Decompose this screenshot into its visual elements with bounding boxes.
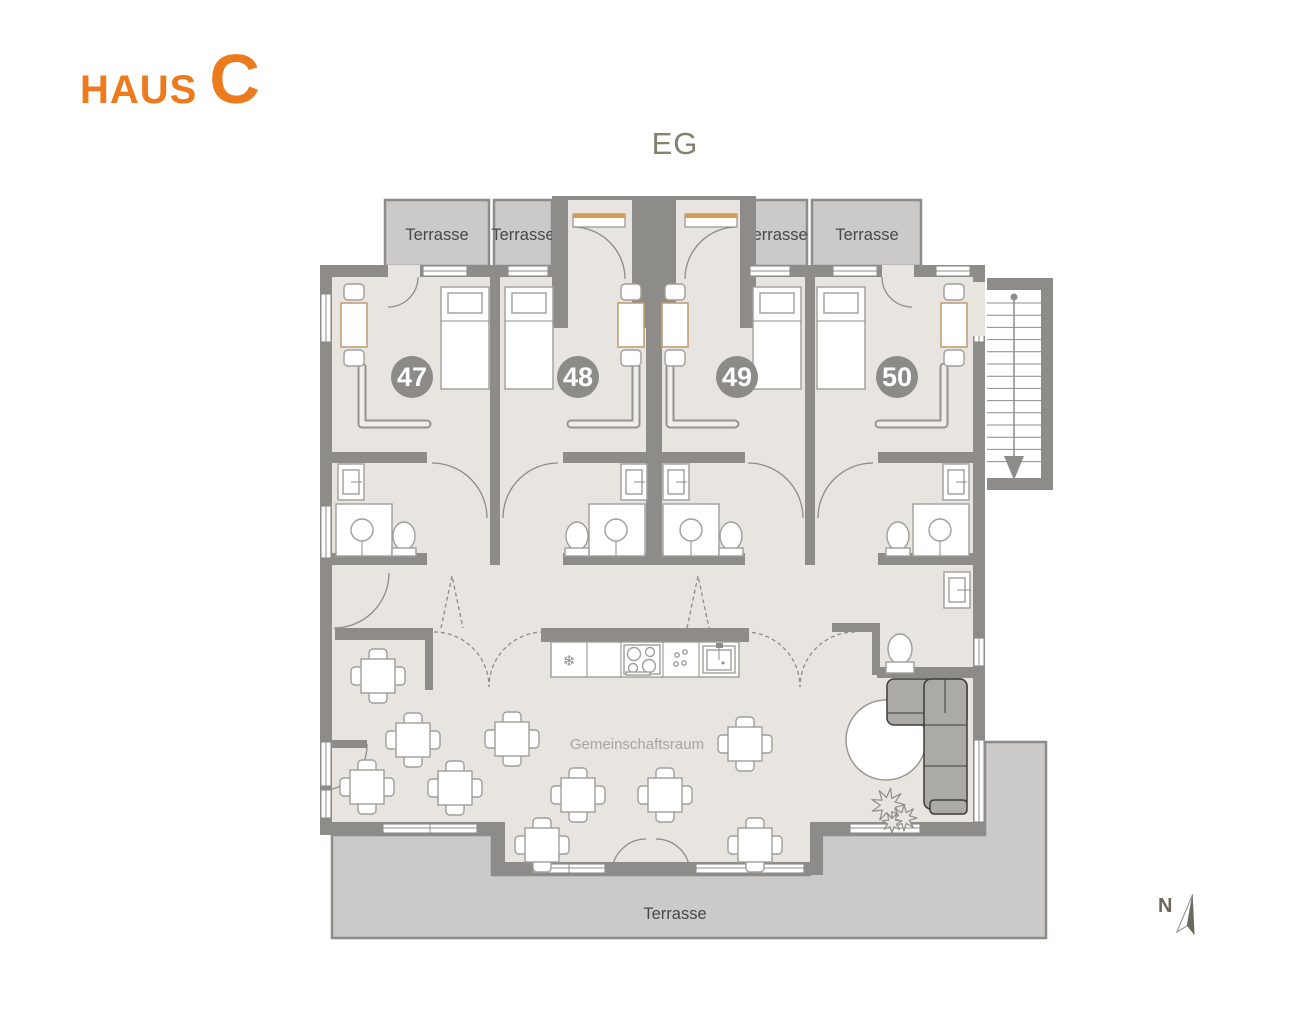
room-badge: 49 [716,356,758,398]
svg-text:49: 49 [722,362,752,392]
bottom-terrace-label: Terrasse [643,905,706,923]
bed [505,287,553,389]
terrace-label: Terrasse [835,226,898,244]
floor-plan-svg: Terrasse Terrasse Terrasse Terrasse [0,0,1301,1021]
svg-text:48: 48 [563,362,593,392]
room-table [941,284,967,366]
bed [441,287,489,389]
room-table [341,284,367,366]
svg-text:50: 50 [882,362,912,392]
room-table [662,284,688,366]
shower-fixture [944,572,971,608]
north-compass: N [1158,893,1202,936]
north-label: N [1158,895,1172,917]
svg-text:47: 47 [397,362,427,392]
terrace-label: Terrasse [405,226,468,244]
bed [753,287,801,389]
north-arrow-icon [1177,893,1202,936]
kitchen-counter: ❄ [551,642,739,677]
room-badge: 50 [876,356,918,398]
bed [817,287,865,389]
wc-toilet [886,634,914,673]
room-badge: 48 [557,356,599,398]
freezer-snowflake-icon: ❄ [563,653,576,670]
room-table [618,284,644,366]
cooktop-icon [624,645,660,675]
kitchen-sink-icon [703,643,735,673]
common-room-label: Gemeinschaftsraum [570,736,704,753]
terrace-label: Terrasse [491,226,554,244]
room-badge: 47 [391,356,433,398]
